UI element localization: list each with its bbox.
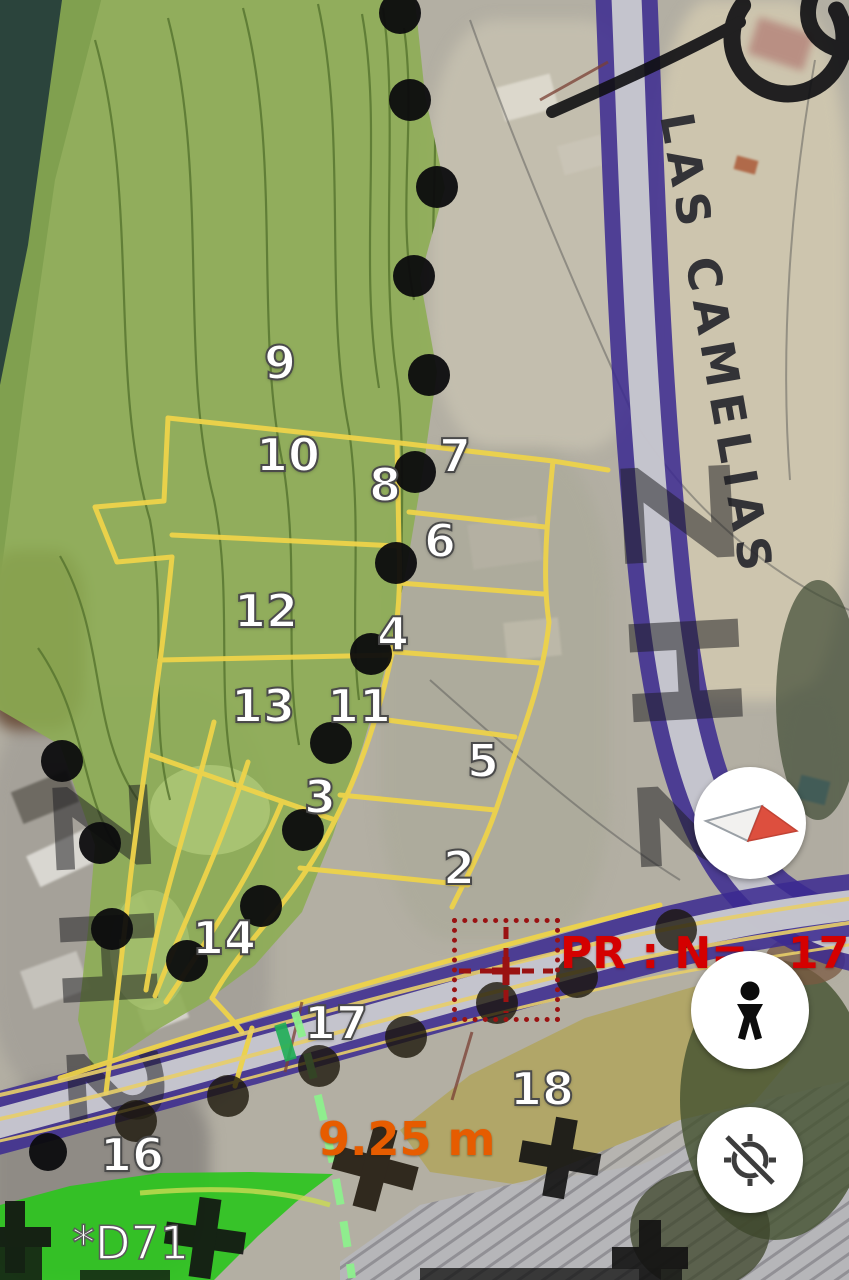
parcel-number-label: 6	[424, 514, 456, 568]
pr-reference-marker	[452, 918, 560, 1022]
parcel-number-label: 3	[304, 770, 336, 824]
compass-button[interactable]	[694, 767, 806, 879]
parcel-number-label: 5	[467, 734, 499, 788]
map-viewport[interactable]: LAS CAMELIAS ZH2 ZH2	[0, 0, 849, 1280]
station-label: *D71	[72, 1216, 189, 1270]
parcel-number-label: 10	[256, 428, 320, 482]
parcel-number-label: 2	[443, 841, 475, 895]
pegman-icon	[714, 974, 786, 1046]
parcel-number-label: 12	[234, 584, 298, 638]
parcel-number-label: 17	[304, 996, 368, 1050]
parcel-number-label: 7	[439, 429, 471, 483]
parcel-number-label: 14	[192, 911, 256, 965]
parcel-number-label: 9	[264, 336, 296, 390]
parcel-number-label: 13	[231, 679, 295, 733]
location-disabled-icon	[717, 1127, 783, 1193]
parcel-number-label: 8	[369, 458, 401, 512]
pr-marker-cross	[457, 923, 555, 1017]
parcel-number-label: 11	[327, 679, 391, 733]
parcel-number-label: 18	[510, 1062, 574, 1116]
parcel-number-label: 16	[100, 1128, 164, 1182]
pr-label-suffix: 173	[788, 928, 849, 979]
measurement-label: 9.25 m	[318, 1112, 495, 1166]
compass-needle-icon	[694, 767, 806, 879]
map-overlay-graphics: LAS CAMELIAS ZH2 ZH2	[0, 0, 849, 1280]
my-location-button[interactable]	[697, 1107, 803, 1213]
street-view-button[interactable]	[691, 951, 809, 1069]
parcel-number-label: 4	[377, 607, 409, 661]
